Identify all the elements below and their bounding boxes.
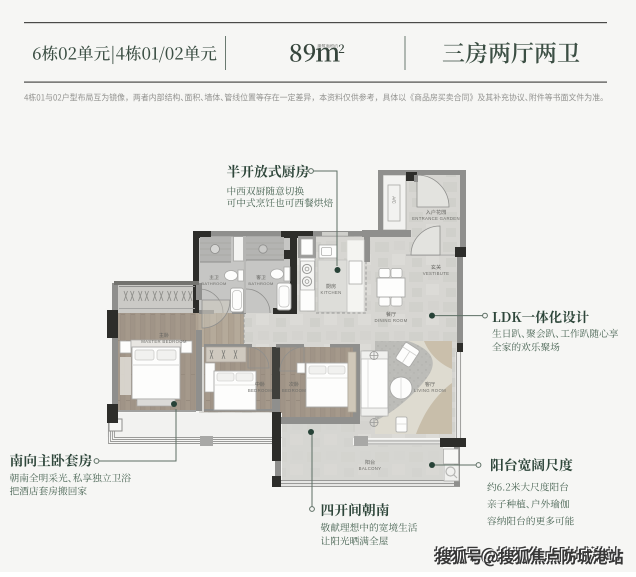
svg-text:MASTER BEDROOM: MASTER BEDROOM — [141, 339, 187, 344]
svg-text:BEDROOM: BEDROOM — [282, 388, 306, 393]
svg-text:BATHROOM: BATHROOM — [201, 281, 226, 286]
svg-text:A/C: A/C — [392, 196, 397, 204]
svg-text:DINING ROOM: DINING ROOM — [375, 318, 408, 323]
svg-text:KITCHEN: KITCHEN — [321, 290, 342, 295]
svg-text:VESTIBUTE: VESTIBUTE — [423, 271, 450, 276]
svg-text:BALCONY: BALCONY — [359, 466, 382, 471]
svg-text:BEDROOM: BEDROOM — [248, 388, 272, 393]
svg-text:ENTRANCE GARDEN: ENTRANCE GARDEN — [412, 216, 460, 221]
svg-text:LIVING ROOM: LIVING ROOM — [414, 388, 446, 393]
svg-text:BATHROOM: BATHROOM — [248, 281, 273, 286]
